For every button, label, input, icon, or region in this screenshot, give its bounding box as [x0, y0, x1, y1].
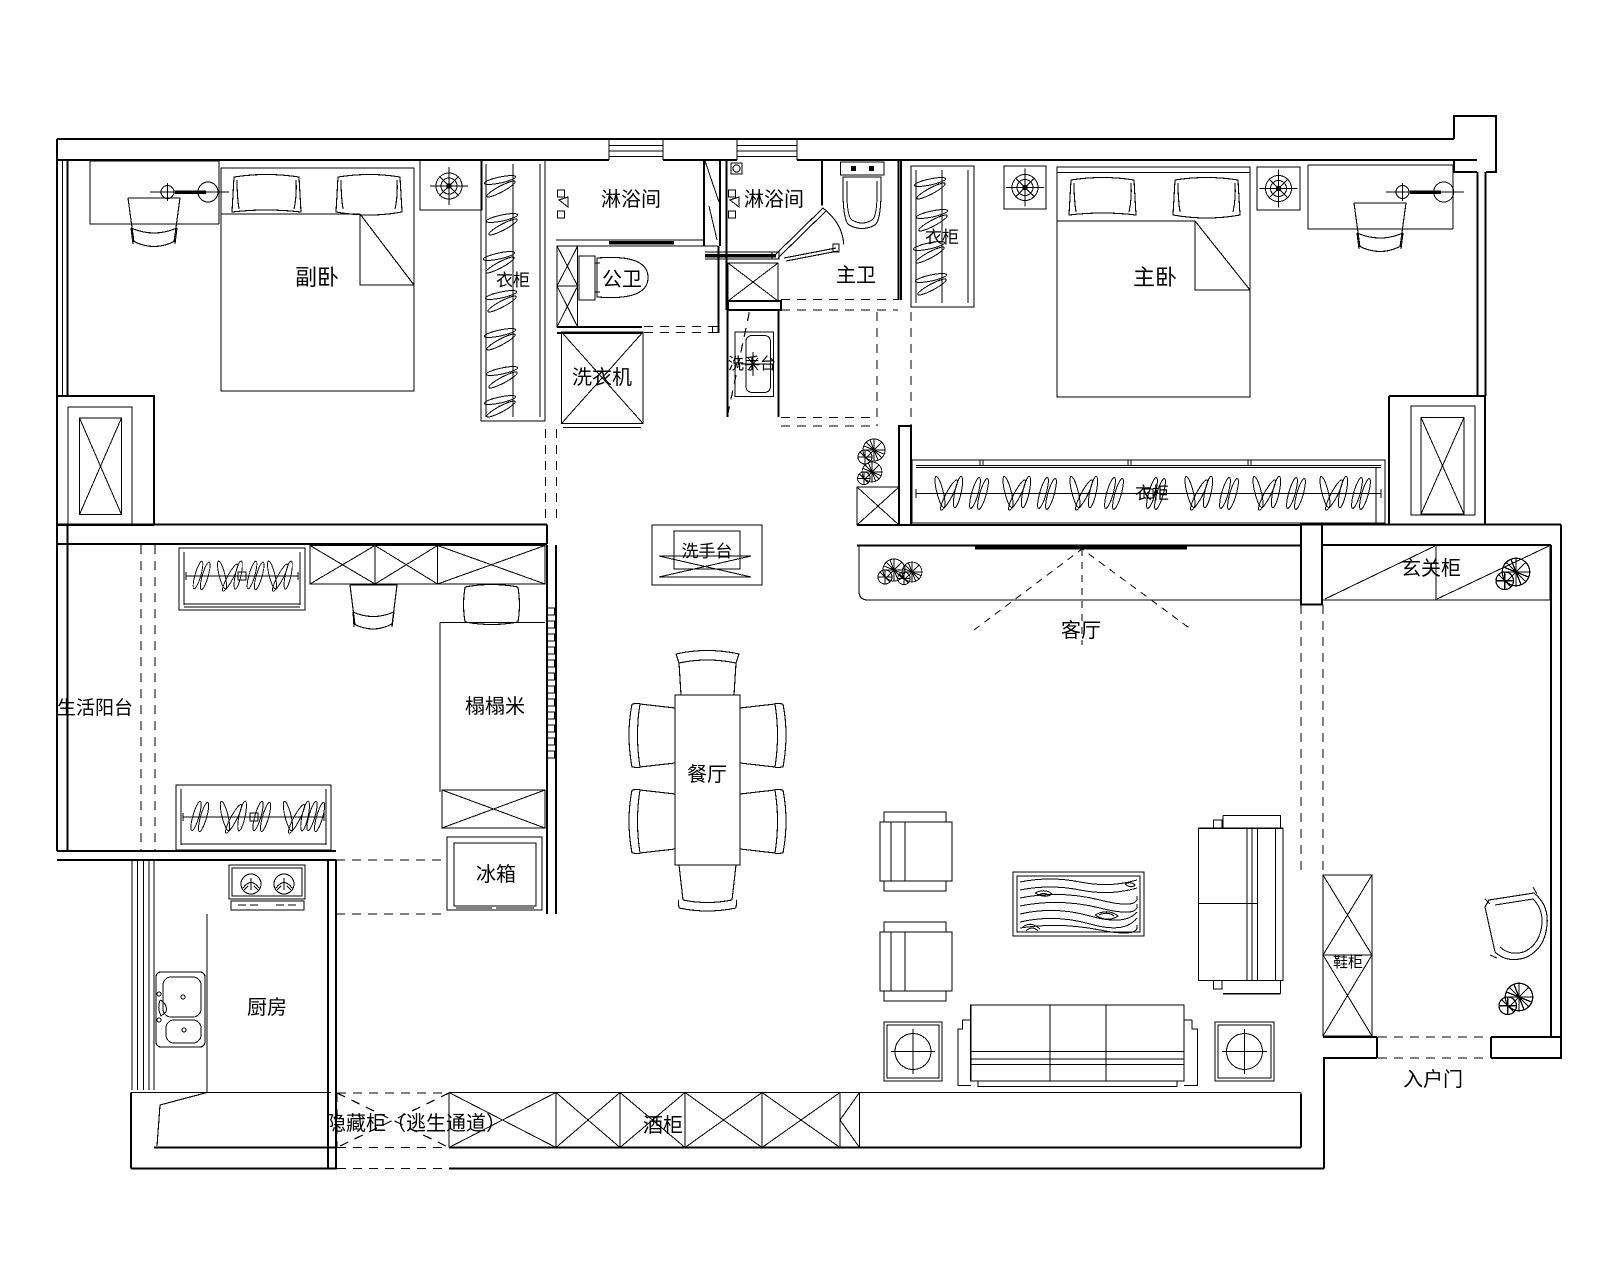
svg-text:主卧: 主卧: [1133, 265, 1177, 290]
svg-text:副卧: 副卧: [295, 265, 339, 290]
svg-text:洗手台: 洗手台: [728, 355, 776, 373]
svg-text:入户门: 入户门: [1403, 1068, 1463, 1091]
svg-text:公卫: 公卫: [602, 269, 642, 291]
svg-text:生活阳台: 生活阳台: [57, 697, 133, 719]
svg-text:衣柜: 衣柜: [1135, 484, 1169, 503]
svg-text:餐厅: 餐厅: [687, 763, 727, 786]
svg-text:酒柜: 酒柜: [643, 1114, 683, 1137]
svg-text:厨房: 厨房: [247, 996, 287, 1019]
svg-text:洗衣机: 洗衣机: [572, 366, 632, 389]
svg-text:客厅: 客厅: [1061, 619, 1101, 642]
svg-text:淋浴间: 淋浴间: [601, 188, 661, 211]
svg-text:主卫: 主卫: [836, 264, 876, 287]
svg-text:衣柜: 衣柜: [925, 228, 959, 247]
svg-text:榻榻米: 榻榻米: [465, 695, 525, 718]
svg-text:淋浴间: 淋浴间: [744, 188, 804, 211]
svg-text:玄关柜: 玄关柜: [1401, 557, 1461, 580]
svg-text:洗手台: 洗手台: [682, 542, 733, 561]
svg-text:鞋柜: 鞋柜: [1333, 954, 1363, 971]
svg-text:衣柜: 衣柜: [496, 271, 530, 290]
svg-text:冰箱: 冰箱: [476, 863, 516, 886]
